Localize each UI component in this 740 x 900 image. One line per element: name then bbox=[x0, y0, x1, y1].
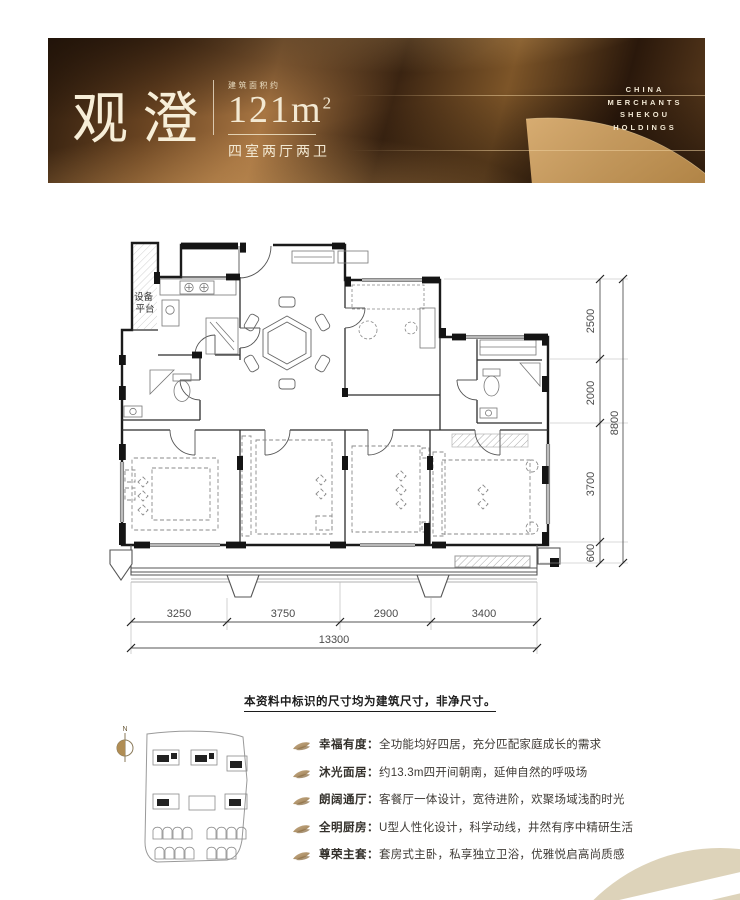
dimension-label: 3700 bbox=[585, 472, 597, 496]
brand-wordmark: CHINA MERCHANTS SHEKOU HOLDINGS bbox=[588, 84, 702, 134]
feature-desc: 套房式主卧，私享独立卫浴，优雅悦启高尚质感 bbox=[379, 849, 625, 861]
feature-title: 全明厨房： bbox=[319, 822, 379, 834]
feature-text: 沐光面居：约13.3m四开间朝南，延伸自然的呼吸场 bbox=[319, 765, 587, 781]
note-wrap: 本资料中标识的尺寸均为建筑尺寸，非净尺寸。 bbox=[0, 692, 740, 712]
leaf-icon bbox=[292, 850, 312, 862]
site-boundary bbox=[145, 731, 247, 862]
brand-line: CHINA bbox=[588, 84, 702, 97]
feature-title: 幸福有度： bbox=[319, 739, 379, 751]
leaf-icon bbox=[292, 740, 312, 752]
brand-line: MERCHANTS bbox=[588, 97, 702, 110]
feature-text: 幸福有度：全功能均好四居，充分匹配家庭成长的需求 bbox=[319, 737, 601, 753]
feature-desc: 约13.3m四开间朝南，延伸自然的呼吸场 bbox=[379, 767, 587, 779]
disclaimer-note: 本资料中标识的尺寸均为建筑尺寸，非净尺寸。 bbox=[244, 693, 496, 712]
dimension-label: 3750 bbox=[271, 608, 295, 620]
layout-label: 四室两厅两卫 bbox=[228, 141, 333, 161]
north-label: N bbox=[122, 726, 127, 733]
equipment-platform-hatch bbox=[133, 244, 157, 329]
feature-list: 幸福有度：全功能均好四居，充分匹配家庭成长的需求 沐光面居：约13.3m四开间朝… bbox=[292, 737, 592, 875]
feature-row: 尊荣主套：套房式主卧，私享独立卫浴，优雅悦启高尚质感 bbox=[292, 847, 592, 875]
wall-columns bbox=[119, 243, 559, 567]
dim-chain-bottom: 3250 3750 2900 3400 13300 bbox=[127, 608, 541, 652]
dining-table bbox=[243, 297, 331, 389]
dimension-total-label: 13300 bbox=[319, 634, 350, 646]
feature-row: 朗阔通厅：客餐厅一体设计，宽待进阶，欢聚场域浅酌时光 bbox=[292, 792, 592, 820]
brand-line: SHEKOU bbox=[588, 109, 702, 122]
feature-title: 朗阔通厅： bbox=[319, 794, 379, 806]
leaf-icon bbox=[292, 823, 312, 835]
highlighted-buildings bbox=[157, 753, 242, 806]
compass-icon: N bbox=[117, 726, 133, 762]
feature-text: 尊荣主套：套房式主卧，私享独立卫浴，优雅悦启高尚质感 bbox=[319, 847, 625, 863]
floor-plan: 设备 平台 2500 2000 3700 600 8800 bbox=[80, 230, 640, 670]
interior-walls bbox=[122, 277, 548, 545]
feature-row: 沐光面居：约13.3m四开间朝南，延伸自然的呼吸场 bbox=[292, 765, 592, 793]
leaf-icon bbox=[292, 795, 312, 807]
feature-desc: 客餐厅一体设计，宽待进阶，欢聚场域浅酌时光 bbox=[379, 794, 625, 806]
dimension-label: 3250 bbox=[167, 608, 191, 620]
study-room bbox=[352, 285, 435, 348]
feature-text: 朗阔通厅：客餐厅一体设计，宽待进阶，欢聚场域浅酌时光 bbox=[319, 792, 625, 808]
area-value: 121m2 bbox=[228, 91, 333, 131]
dimension-total-label: 8800 bbox=[609, 411, 621, 435]
dimension-label: 3400 bbox=[472, 608, 496, 620]
bathroom-left bbox=[124, 370, 191, 417]
brand-line: HOLDINGS bbox=[588, 122, 702, 135]
leaf-icon bbox=[292, 768, 312, 780]
feature-desc: U型人性化设计，科学动线，井然有序中精研生活 bbox=[379, 822, 633, 834]
feature-row: 全明厨房：U型人性化设计，科学动线，井然有序中精研生活 bbox=[292, 820, 592, 848]
plan-title: 观澄 bbox=[72, 74, 212, 155]
dim-chain-right: 2500 2000 3700 600 8800 bbox=[585, 275, 627, 567]
header-banner: 观澄 建筑面积约 121m2 四室两厅两卫 CHINA MERCHANTS SH… bbox=[48, 38, 705, 183]
master-wardrobe bbox=[452, 434, 528, 447]
bathroom-right bbox=[480, 340, 540, 418]
site-plan: N bbox=[95, 722, 255, 887]
flyer-page: 观澄 建筑面积约 121m2 四室两厅两卫 CHINA MERCHANTS SH… bbox=[0, 0, 740, 900]
dim-extensions bbox=[131, 279, 628, 654]
area-block: 建筑面积约 121m2 四室两厅两卫 bbox=[228, 80, 333, 161]
feature-row: 幸福有度：全功能均好四居，充分匹配家庭成长的需求 bbox=[292, 737, 592, 765]
decor-line bbox=[350, 150, 705, 151]
dimension-label: 2000 bbox=[585, 381, 597, 405]
dimension-label: 600 bbox=[585, 544, 597, 562]
feature-text: 全明厨房：U型人性化设计，科学动线，井然有序中精研生活 bbox=[319, 820, 633, 836]
divider bbox=[213, 80, 214, 135]
bedroom-furniture bbox=[125, 436, 538, 536]
dimension-label: 2900 bbox=[374, 608, 398, 620]
area-underline bbox=[228, 134, 316, 135]
feature-title: 沐光面居： bbox=[319, 767, 379, 779]
feature-title: 尊荣主套： bbox=[319, 849, 379, 861]
feature-desc: 全功能均好四居，充分匹配家庭成长的需求 bbox=[379, 739, 601, 751]
dimension-label: 2500 bbox=[585, 309, 597, 333]
balcony bbox=[110, 545, 560, 597]
